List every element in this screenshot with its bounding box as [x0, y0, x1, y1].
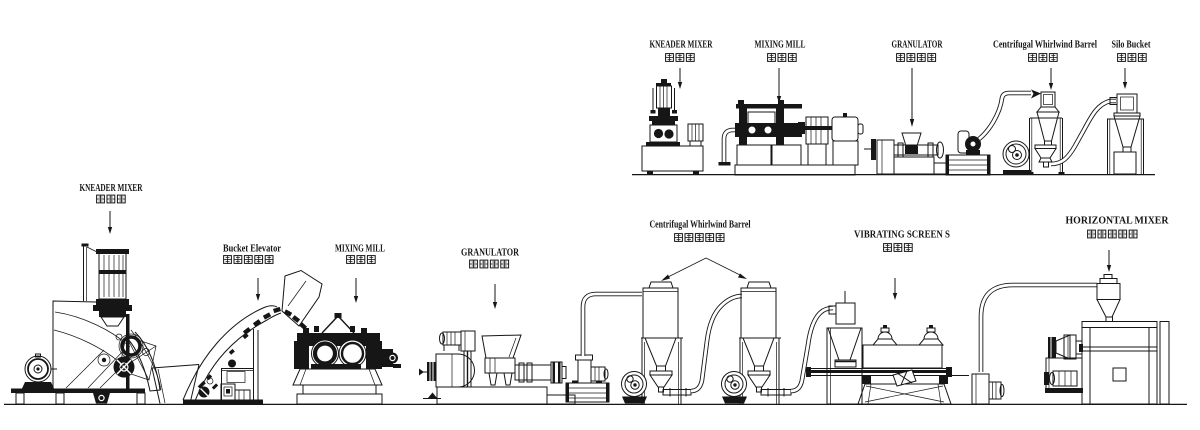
- svg-text:KNEADER MIXER: KNEADER MIXER: [80, 182, 144, 194]
- svg-text:HORIZONTAL MIXER: HORIZONTAL MIXER: [1066, 215, 1170, 227]
- svg-text:MIXING MILL: MIXING MILL: [335, 243, 385, 255]
- svg-text:Silo Bucket: Silo Bucket: [1112, 39, 1151, 51]
- svg-text:Centrifugal Whirlwind Barrel: Centrifugal Whirlwind Barrel: [993, 39, 1097, 51]
- svg-text:GRANULATOR: GRANULATOR: [892, 39, 944, 51]
- svg-text:Centrifugal Whirlwind Barrel: Centrifugal Whirlwind Barrel: [650, 219, 751, 231]
- svg-text:VIBRATING SCREEN S: VIBRATING SCREEN S: [854, 229, 950, 241]
- svg-text:KNEADER MIXER: KNEADER MIXER: [650, 39, 714, 51]
- svg-text:GRANULATOR: GRANULATOR: [461, 247, 520, 259]
- svg-text:MIXING MILL: MIXING MILL: [755, 39, 806, 51]
- svg-text:Bucket Elevator: Bucket Elevator: [223, 243, 281, 255]
